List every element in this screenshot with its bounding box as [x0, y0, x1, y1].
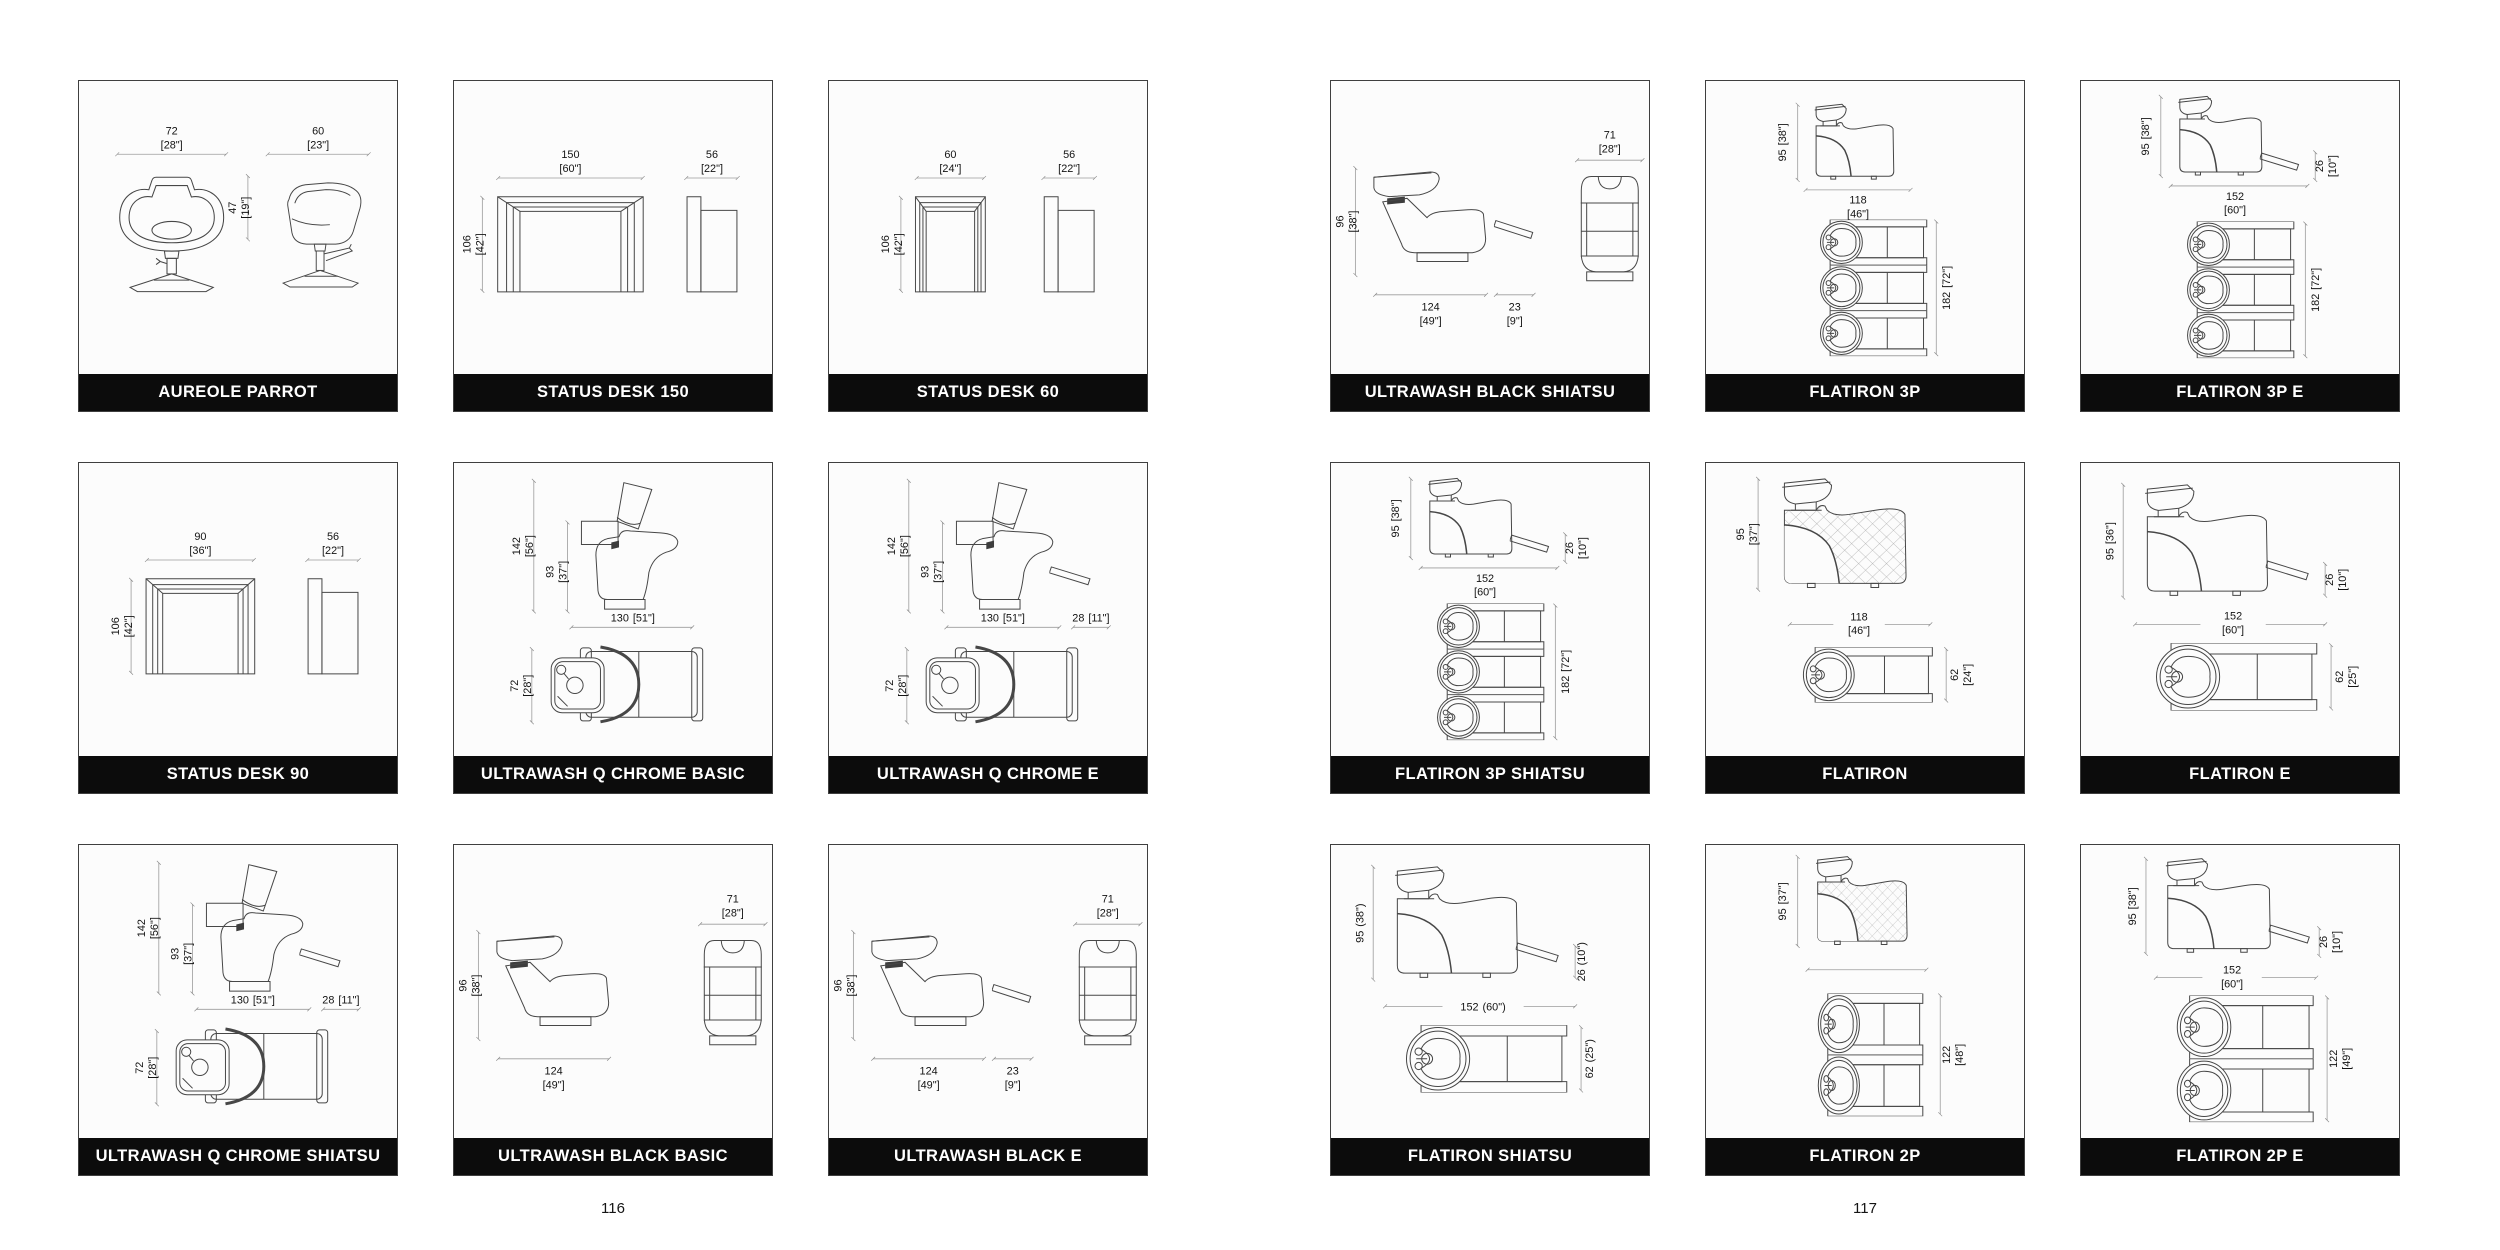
product-card-flatiron: 95[37"] 118[46"] 62[24"] FLATIRON: [1705, 462, 2025, 794]
technical-drawing: 150[60"] 56[22"] 106[42"]: [454, 81, 772, 374]
top-view-drawing: [1438, 695, 1544, 741]
dim-label: 56[22"]: [701, 149, 723, 175]
front-view-drawing: [120, 177, 224, 291]
top-view-drawing: [1406, 1025, 1566, 1092]
product-card-ultrawash-black-basic: 96[38"] 124[49"] 71[28"] ULTRAWASH BLACK…: [453, 844, 773, 1176]
product-title: STATUS DESK 150: [454, 374, 772, 411]
top-view-drawing: [926, 647, 1078, 722]
product-title: AUREOLE PARROT: [79, 374, 397, 411]
dim-label: 106[42"]: [461, 233, 486, 255]
technical-drawing: 95[36"] 152[60"] 26[10"] 62[25"]: [2081, 463, 2399, 756]
top-view-drawing: [1438, 649, 1544, 695]
product-card-status-desk-150: 150[60"] 56[22"] 106[42"] STATUS DESK 15…: [453, 80, 773, 412]
dim-label: 124[49"]: [1420, 302, 1442, 328]
technical-drawing: 95[37"] 122[48"]: [1706, 845, 2024, 1138]
dim-label: 26(10"): [1576, 942, 1588, 981]
product-card-flatiron-3p-e: 95[38"] 152[60"] 26[10"] 182[72"] FLATIR…: [2080, 80, 2400, 412]
product-card-ultrawash-black-shiatsu: 96[38"] 124[49"] 23[9"] 71[28"] ULTRAWAS…: [1330, 80, 1650, 412]
side-view-drawing: [283, 183, 361, 287]
side-view-drawing: [687, 197, 737, 292]
dim-label: 118[46"]: [1848, 611, 1870, 637]
top-view-drawing: [551, 647, 703, 722]
technical-drawing: 60[24"] 56[22"] 106[42"]: [829, 81, 1147, 374]
catalog-page-left: 72[28"] 60[23"] 47[19"] AUREOLE PARROT 1…: [78, 80, 1148, 1176]
footrest-drawing: [992, 985, 1031, 1003]
product-grid-left: 72[28"] 60[23"] 47[19"] AUREOLE PARROT 1…: [78, 80, 1148, 1176]
product-card-aureole-parrot: 72[28"] 60[23"] 47[19"] AUREOLE PARROT: [78, 80, 398, 412]
dim-label: 130[51"]: [981, 612, 1025, 624]
dim-label: 23[9"]: [1507, 302, 1523, 328]
side-view-drawing: [206, 865, 302, 991]
side-view-drawing: [308, 579, 358, 674]
side-view-drawing: [1782, 479, 1906, 588]
dim-label: 124[49"]: [543, 1066, 565, 1092]
dim-label: 142[56"]: [886, 535, 911, 557]
side-view-drawing: [1374, 172, 1486, 261]
technical-drawing: 142[56"] 93[37"] 130[51"] 72[28"]: [454, 463, 772, 756]
product-card-ultrawash-q-chrome-shiatsu: 142[56"] 93[37"] 130[51"] 28[11"] 72[28"…: [78, 844, 398, 1176]
page-number-left: 116: [78, 1200, 1148, 1217]
dim-label: 152[60"]: [2224, 191, 2246, 217]
side-view-drawing: [581, 483, 677, 609]
product-title: ULTRAWASH BLACK BASIC: [454, 1138, 772, 1175]
product-title: ULTRAWASH Q CHROME SHIATSU: [79, 1138, 397, 1175]
front-view-drawing: [498, 197, 644, 292]
side-view-drawing: [1815, 104, 1894, 179]
top-view-drawing: [1820, 220, 1926, 266]
product-card-flatiron-3p-shiatsu: 95[38"] 152[60"] 26[10"] 182[72"] FLATIR…: [1330, 462, 1650, 794]
dim-label: 62[25"]: [2334, 666, 2359, 688]
front-view-drawing: [915, 197, 985, 292]
dim-label: 96[38"]: [1335, 211, 1360, 233]
product-card-ultrawash-black-e: 96[38"] 124[49"] 23[9"] 71[28"] ULTRAWAS…: [828, 844, 1148, 1176]
dim-label: 47[19"]: [227, 197, 252, 219]
top-view-drawing: [2188, 313, 2294, 359]
top-view-drawing: [176, 1029, 328, 1104]
side-view-drawing: [2145, 485, 2267, 595]
dim-label: 26[10"]: [2324, 569, 2349, 591]
front-view-drawing: [1581, 176, 1638, 280]
product-title: FLATIRON 3P E: [2081, 374, 2399, 411]
technical-drawing: 72[28"] 60[23"] 47[19"]: [79, 81, 397, 374]
top-view-drawing: [1438, 604, 1544, 650]
dim-label: 72[28"]: [161, 125, 183, 151]
product-title: FLATIRON 3P: [1706, 374, 2024, 411]
side-view-drawing: [1816, 857, 1907, 945]
dim-label: 150[60"]: [559, 149, 581, 175]
dim-label: 96[38"]: [458, 975, 483, 997]
dim-label: 60[23"]: [307, 125, 329, 151]
product-title: FLATIRON E: [2081, 756, 2399, 793]
dim-label: 152[60"]: [2222, 610, 2244, 636]
top-view-drawing: [2188, 267, 2294, 313]
dim-label: 152[60"]: [2221, 965, 2243, 991]
dim-label: 182[72"]: [1560, 650, 1572, 694]
product-card-flatiron-shiatsu: 95(38") 152(60") 26(10") 62(25") FLATIRO…: [1330, 844, 1650, 1176]
top-view-drawing: [1803, 647, 1932, 702]
footrest-drawing: [1049, 567, 1090, 585]
footrest-drawing: [2269, 925, 2310, 943]
technical-drawing: 96[38"] 124[49"] 23[9"] 71[28"]: [1331, 81, 1649, 374]
dim-label: 130[51"]: [611, 612, 655, 624]
dim-label: 152[60"]: [1474, 573, 1496, 599]
product-card-ultrawash-q-chrome-e: 142[56"] 93[37"] 130[51"] 28[11"] 72[28"…: [828, 462, 1148, 794]
technical-drawing: 96[38"] 124[49"] 71[28"]: [454, 845, 772, 1138]
dim-label: 56[22"]: [1058, 149, 1080, 175]
top-view-drawing: [1820, 311, 1926, 357]
dim-label: 23[9"]: [1005, 1066, 1021, 1092]
product-title: FLATIRON 2P E: [2081, 1138, 2399, 1175]
dim-label: 106[42"]: [110, 615, 135, 637]
dim-label: 72[28"]: [134, 1057, 159, 1079]
footrest-drawing: [1494, 221, 1533, 239]
product-title: ULTRAWASH Q CHROME E: [829, 756, 1147, 793]
front-view-drawing: [146, 579, 255, 674]
dim-label: 72[28"]: [884, 675, 909, 697]
side-view-drawing: [1395, 867, 1517, 977]
top-view-drawing: [2177, 995, 2313, 1058]
dim-label: 95(38"): [1354, 904, 1366, 943]
dim-label: 90[36"]: [189, 531, 211, 557]
catalog-page-right: 96[38"] 124[49"] 23[9"] 71[28"] ULTRAWAS…: [1330, 80, 2400, 1176]
technical-drawing: 142[56"] 93[37"] 130[51"] 28[11"] 72[28"…: [79, 845, 397, 1138]
dim-label: 106[42"]: [880, 233, 905, 255]
product-title: STATUS DESK 90: [79, 756, 397, 793]
technical-drawing: 96[38"] 124[49"] 23[9"] 71[28"]: [829, 845, 1147, 1138]
dim-label: 72[28"]: [509, 675, 534, 697]
dim-label: 122[49"]: [2328, 1048, 2353, 1070]
dim-label: 93[37"]: [545, 561, 570, 583]
dim-label: 62(25"): [1584, 1039, 1596, 1078]
side-view-drawing: [1428, 478, 1512, 557]
product-title: FLATIRON 3P SHIATSU: [1331, 756, 1649, 793]
product-title: ULTRAWASH Q CHROME BASIC: [454, 756, 772, 793]
product-title: ULTRAWASH BLACK SHIATSU: [1331, 374, 1649, 411]
product-card-flatiron-3p: 95[38"] 118[46"] 182[72"] FLATIRON 3P: [1705, 80, 2025, 412]
product-title: ULTRAWASH BLACK E: [829, 1138, 1147, 1175]
product-card-flatiron-2p: 95[37"] 122[48"] FLATIRON 2P: [1705, 844, 2025, 1176]
front-view-drawing: [704, 940, 761, 1044]
dim-label: 62[24"]: [1949, 664, 1974, 686]
product-title: FLATIRON SHIATSU: [1331, 1138, 1649, 1175]
technical-drawing: 95(38") 152(60") 26(10") 62(25"): [1331, 845, 1649, 1138]
dim-label: 96[38"]: [833, 975, 858, 997]
dim-label: 118[46"]: [1847, 195, 1869, 221]
product-title: STATUS DESK 60: [829, 374, 1147, 411]
product-title: FLATIRON: [1706, 756, 2024, 793]
dim-label: 142[56"]: [511, 535, 536, 557]
footrest-drawing: [299, 949, 340, 967]
technical-drawing: 95[38"] 152[60"] 26[10"] 182[72"]: [2081, 81, 2399, 374]
side-view-drawing: [872, 936, 984, 1025]
dim-label: 95[38"]: [1390, 499, 1402, 537]
technical-drawing: 142[56"] 93[37"] 130[51"] 28[11"] 72[28"…: [829, 463, 1147, 756]
product-card-status-desk-90: 90[36"] 56[22"] 106[42"] STATUS DESK 90: [78, 462, 398, 794]
product-grid-right: 96[38"] 124[49"] 23[9"] 71[28"] ULTRAWAS…: [1330, 80, 2400, 1176]
footrest-drawing: [1516, 943, 1558, 962]
top-view-drawing: [1818, 993, 1923, 1054]
side-view-drawing: [2178, 96, 2262, 175]
product-card-ultrawash-q-chrome-basic: 142[56"] 93[37"] 130[51"] 72[28"] ULTRAW…: [453, 462, 773, 794]
dim-label: 142[56"]: [136, 917, 161, 939]
dim-label: 28[11"]: [1072, 612, 1109, 624]
dim-label: 130[51"]: [231, 994, 275, 1006]
side-view-drawing: [1044, 197, 1094, 292]
product-card-status-desk-60: 60[24"] 56[22"] 106[42"] STATUS DESK 60: [828, 80, 1148, 412]
top-view-drawing: [1818, 1055, 1923, 1116]
side-view-drawing: [497, 936, 609, 1025]
dim-label: 182[72"]: [1941, 266, 1953, 310]
dim-label: 26[10"]: [2318, 931, 2343, 953]
top-view-drawing: [2156, 643, 2316, 710]
product-card-flatiron-e: 95[36"] 152[60"] 26[10"] 62[25"] FLATIRO…: [2080, 462, 2400, 794]
page-number-right: 117: [1330, 1200, 2400, 1217]
dim-label: 93[37"]: [920, 561, 945, 583]
dim-label: 122[48"]: [1941, 1044, 1966, 1066]
technical-drawing: 95[37"] 118[46"] 62[24"]: [1706, 463, 2024, 756]
dim-label: 95[36"]: [2104, 522, 2116, 560]
top-view-drawing: [2188, 222, 2294, 268]
dim-label: 71[28"]: [1097, 893, 1119, 919]
dim-label: 95[37"]: [1777, 882, 1789, 920]
dim-label: 56[22"]: [322, 531, 344, 557]
side-view-drawing: [2166, 859, 2270, 953]
dim-label: 124[49"]: [918, 1066, 940, 1092]
footrest-drawing: [2260, 153, 2299, 170]
technical-drawing: 95[38"] 152[60"] 26[10"] 122[49"]: [2081, 845, 2399, 1138]
dim-label: 71[28"]: [1599, 129, 1621, 155]
dim-label: 152(60"): [1460, 1001, 1505, 1013]
dim-label: 95[38"]: [2140, 117, 2152, 155]
footrest-drawing: [1510, 535, 1549, 552]
dim-label: 26[10"]: [1564, 537, 1589, 559]
dim-label: 95[37"]: [1735, 523, 1760, 545]
footrest-drawing: [2266, 561, 2308, 580]
product-card-flatiron-2p-e: 95[38"] 152[60"] 26[10"] 122[49"] FLATIR…: [2080, 844, 2400, 1176]
dim-label: 93[37"]: [170, 943, 195, 965]
product-title: FLATIRON 2P: [1706, 1138, 2024, 1175]
dim-label: 26[10"]: [2314, 155, 2339, 177]
technical-drawing: 95[38"] 152[60"] 26[10"] 182[72"]: [1331, 463, 1649, 756]
technical-drawing: 90[36"] 56[22"] 106[42"]: [79, 463, 397, 756]
dim-label: 71[28"]: [722, 893, 744, 919]
technical-drawing: 95[38"] 118[46"] 182[72"]: [1706, 81, 2024, 374]
side-view-drawing: [956, 483, 1052, 609]
top-view-drawing: [2177, 1059, 2313, 1122]
dim-label: 95[38"]: [2127, 887, 2139, 925]
dim-label: 60[24"]: [939, 149, 961, 175]
dim-label: 95[38"]: [1777, 123, 1789, 161]
dim-label: 28[11"]: [322, 994, 359, 1006]
top-view-drawing: [1820, 265, 1926, 311]
dim-label: 182[72"]: [2310, 268, 2322, 312]
front-view-drawing: [1079, 940, 1136, 1044]
